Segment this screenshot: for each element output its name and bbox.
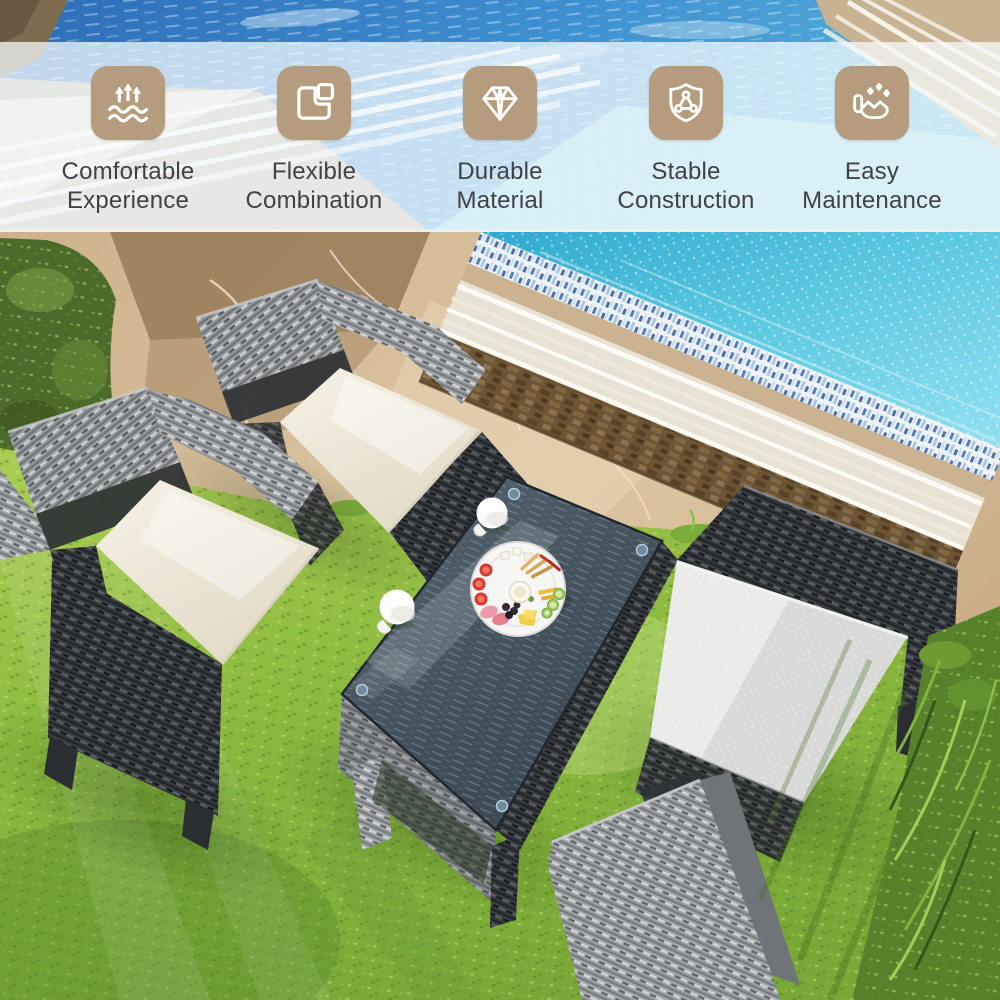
stable-shield-icon [649,66,723,140]
patio-scene [0,232,1000,1000]
feature-label: Comfortable Experience [62,157,195,215]
flexible-combination-icon [277,66,351,140]
feature-comfortable-experience: Comfortable Experience [35,66,221,215]
comfort-waves-icon [91,66,165,140]
feature-durable-material: Durable Material [407,66,593,215]
feature-badges-row: Comfortable Experience Flexible Combinat… [0,0,1000,232]
feature-label: Stable Construction [617,157,754,215]
durable-diamond-icon [463,66,537,140]
product-image: Comfortable Experience Flexible Combinat… [0,0,1000,1000]
feature-easy-maintenance: Easy Maintenance [779,66,965,215]
easy-maintenance-icon [835,66,909,140]
feature-label: Flexible Combination [246,157,383,215]
feature-flexible-combination: Flexible Combination [221,66,407,215]
feature-label: Easy Maintenance [802,157,942,215]
feature-stable-construction: Stable Construction [593,66,779,215]
feature-label: Durable Material [457,157,544,215]
